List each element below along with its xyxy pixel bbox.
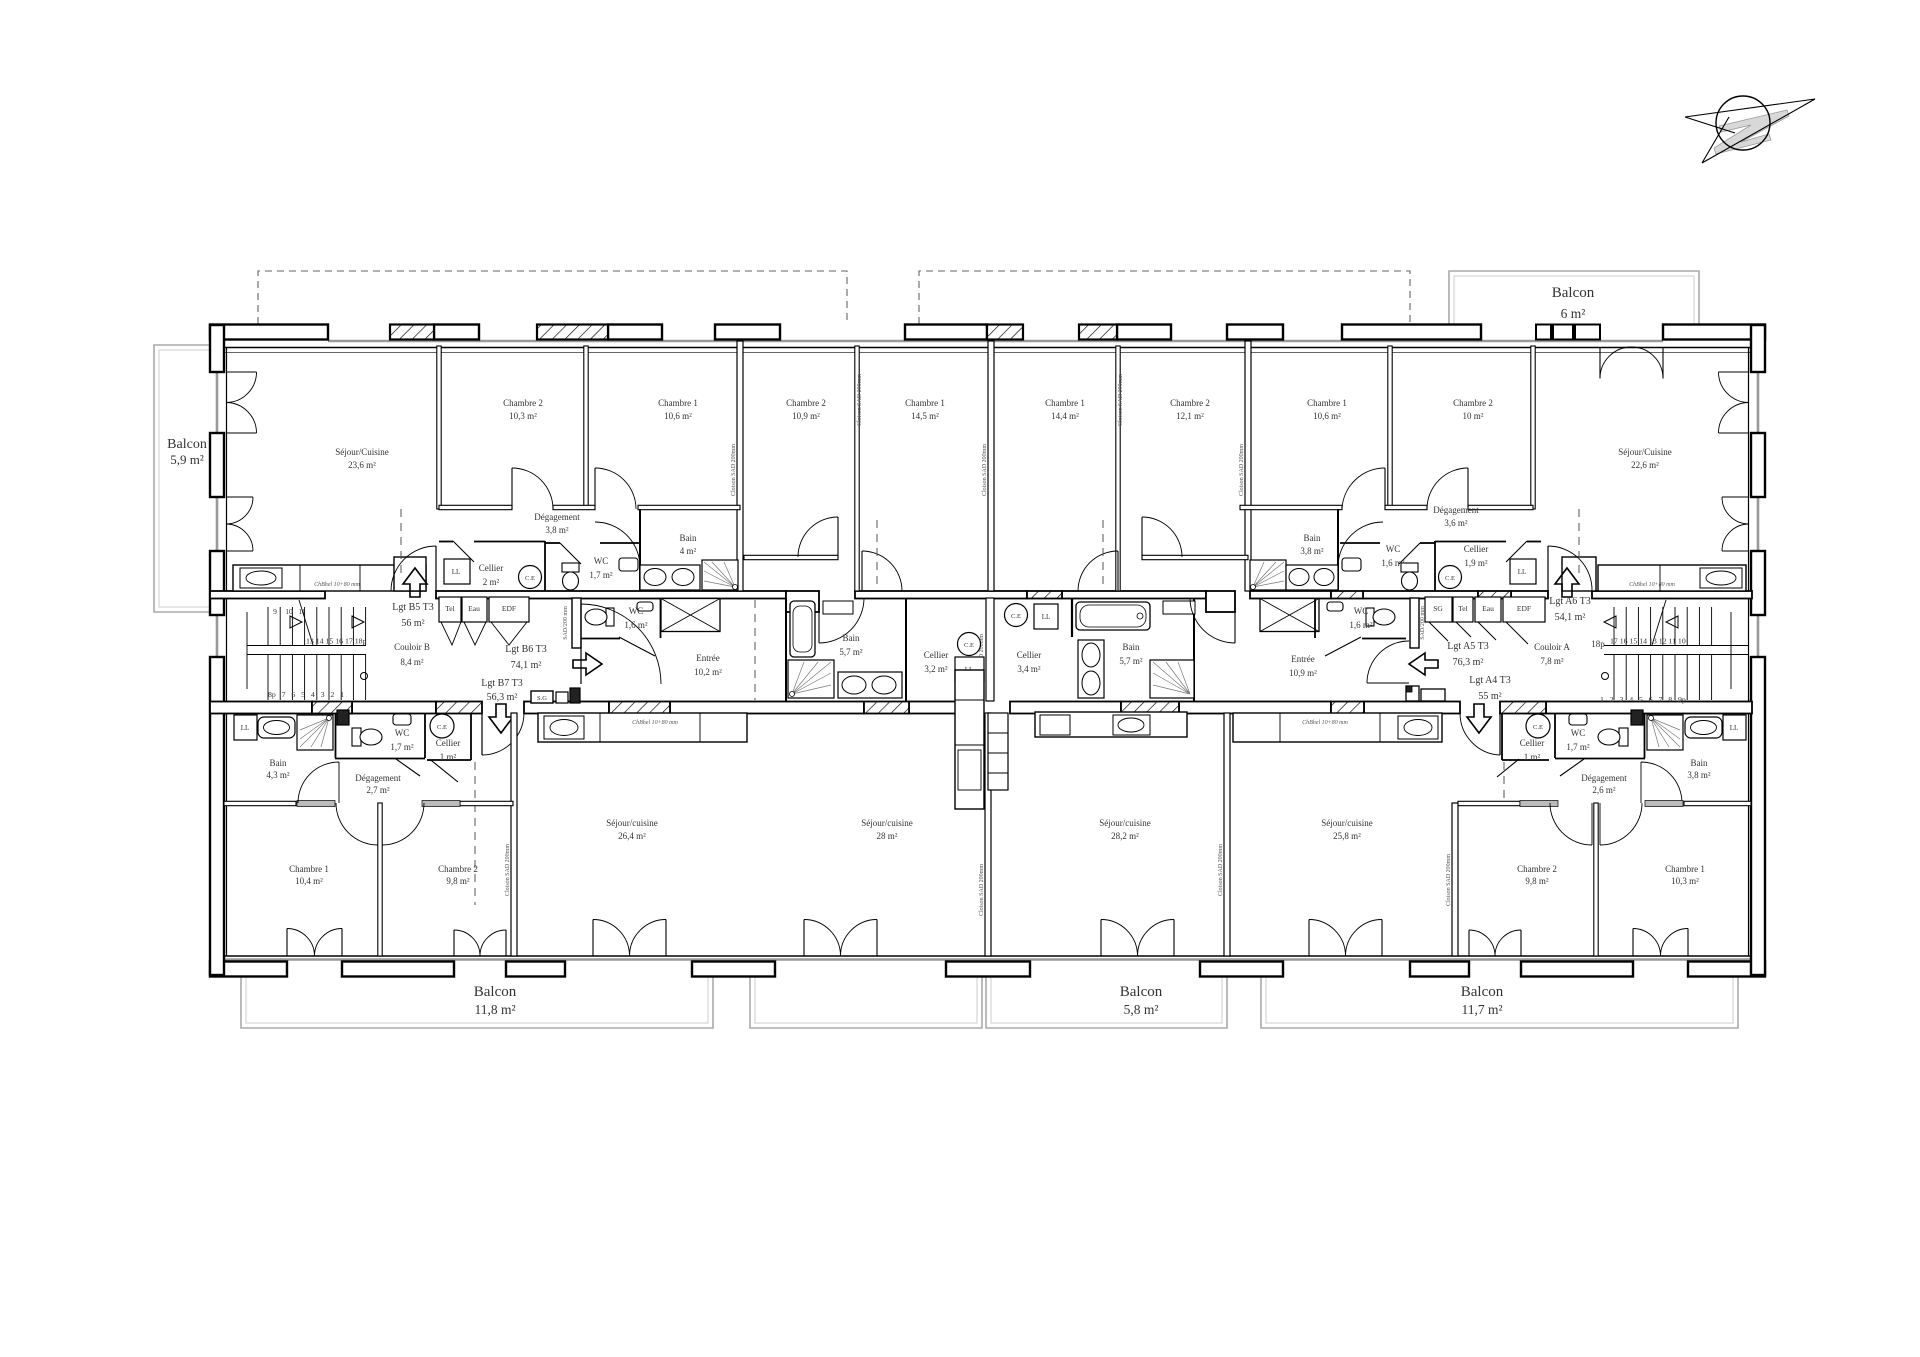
svg-text:WC: WC <box>1354 606 1369 616</box>
svg-text:Lgt B7 T3: Lgt B7 T3 <box>481 678 522 689</box>
svg-text:Chambre 2: Chambre 2 <box>786 398 826 408</box>
svg-text:Chambre 1: Chambre 1 <box>289 864 329 874</box>
svg-text:10 m²: 10 m² <box>1463 411 1484 421</box>
svg-text:Cloison SAD 200mm: Cloison SAD 200mm <box>982 444 988 496</box>
svg-text:Lgt A5 T3: Lgt A5 T3 <box>1447 641 1488 652</box>
svg-text:Entrée: Entrée <box>1291 654 1314 664</box>
svg-text:Chambre 2: Chambre 2 <box>503 398 543 408</box>
svg-text:Dégagement: Dégagement <box>355 773 401 783</box>
svg-text:ChBhel 10+80 mm: ChBhel 10+80 mm <box>1629 582 1675 588</box>
svg-text:4 m²: 4 m² <box>680 546 697 556</box>
svg-text:C.E: C.E <box>1533 724 1543 731</box>
svg-text:Bain: Bain <box>680 533 697 543</box>
svg-text:10: 10 <box>285 607 293 616</box>
svg-text:9,8 m²: 9,8 m² <box>446 876 470 886</box>
svg-text:WC: WC <box>395 728 410 738</box>
svg-text:Chambre 2: Chambre 2 <box>438 864 478 874</box>
svg-text:25,8 m²: 25,8 m² <box>1333 831 1361 841</box>
svg-text:Bain: Bain <box>270 758 287 768</box>
svg-text:Cellier: Cellier <box>479 563 504 573</box>
svg-text:11,8 m²: 11,8 m² <box>474 1002 515 1017</box>
svg-text:LL: LL <box>1518 568 1527 576</box>
svg-text:WC: WC <box>629 606 644 616</box>
svg-text:5,8 m²: 5,8 m² <box>1124 1002 1159 1017</box>
svg-text:C.E: C.E <box>964 642 974 649</box>
svg-text:Séjour/cuisine: Séjour/cuisine <box>861 818 913 828</box>
svg-text:Lgt B6 T3: Lgt B6 T3 <box>505 644 546 655</box>
svg-text:Cloison SAD 200mm: Cloison SAD 200mm <box>1239 444 1245 496</box>
svg-text:Bain: Bain <box>1304 533 1321 543</box>
svg-text:ChBhel 10+80 mm: ChBhel 10+80 mm <box>632 720 678 726</box>
svg-text:S.G: S.G <box>537 695 547 702</box>
svg-text:1,7 m²: 1,7 m² <box>589 570 613 580</box>
svg-text:SG: SG <box>1433 604 1443 613</box>
svg-text:3,6 m²: 3,6 m² <box>1444 518 1468 528</box>
svg-text:Cloison SAD 200mm: Cloison SAD 200mm <box>1118 374 1124 426</box>
svg-text:56,3 m²: 56,3 m² <box>487 692 518 703</box>
svg-text:Couloir B: Couloir B <box>394 642 430 652</box>
svg-text:WC: WC <box>1386 544 1401 554</box>
svg-text:Chambre 1: Chambre 1 <box>1307 398 1347 408</box>
svg-text:Balcon: Balcon <box>474 984 517 1000</box>
svg-text:3,8 m²: 3,8 m² <box>1300 546 1324 556</box>
svg-text:Chambre 1: Chambre 1 <box>1045 398 1085 408</box>
svg-text:Dégagement: Dégagement <box>1433 505 1479 515</box>
svg-text:1 m²: 1 m² <box>440 752 457 762</box>
svg-text:Séjour/cuisine: Séjour/cuisine <box>1099 818 1151 828</box>
svg-text:Séjour/Cuisine: Séjour/Cuisine <box>335 447 389 457</box>
svg-text:8p 7 6 5 4 3 2 1: 8p 7 6 5 4 3 2 1 <box>268 690 344 699</box>
svg-text:7,8 m²: 7,8 m² <box>1540 656 1564 666</box>
svg-text:Chambre 2: Chambre 2 <box>1170 398 1210 408</box>
svg-text:LL: LL <box>1730 724 1739 732</box>
svg-text:10,2 m²: 10,2 m² <box>694 667 722 677</box>
svg-text:ChBhel 10+80 mm: ChBhel 10+80 mm <box>1302 720 1348 726</box>
svg-text:Séjour/Cuisine: Séjour/Cuisine <box>1618 447 1672 457</box>
svg-text:WC: WC <box>1571 728 1586 738</box>
svg-text:9: 9 <box>273 607 277 616</box>
svg-text:Chambre 1: Chambre 1 <box>905 398 945 408</box>
svg-text:10,9 m²: 10,9 m² <box>792 411 820 421</box>
svg-text:1 m²: 1 m² <box>1524 752 1541 762</box>
svg-text:Cellier: Cellier <box>436 738 461 748</box>
svg-text:Cloison SAD 200mm: Cloison SAD 200mm <box>1446 854 1452 906</box>
svg-text:14,5 m²: 14,5 m² <box>911 411 939 421</box>
svg-text:Bain: Bain <box>1123 642 1140 652</box>
svg-text:5,7 m²: 5,7 m² <box>839 647 863 657</box>
svg-text:23,6 m²: 23,6 m² <box>348 460 376 470</box>
svg-text:1,6 m²: 1,6 m² <box>624 620 648 630</box>
svg-text:WC: WC <box>594 556 609 566</box>
svg-text:Dégagement: Dégagement <box>1581 773 1627 783</box>
svg-text:11,7 m²: 11,7 m² <box>1461 1002 1502 1017</box>
svg-text:Balcon: Balcon <box>1461 984 1504 1000</box>
svg-text:3,8 m²: 3,8 m² <box>1687 770 1711 780</box>
svg-text:EDF: EDF <box>502 604 516 613</box>
svg-text:11: 11 <box>298 607 305 616</box>
svg-text:LL: LL <box>452 568 461 576</box>
svg-text:76,3 m²: 76,3 m² <box>1453 657 1484 668</box>
svg-text:1,6 m²: 1,6 m² <box>1349 620 1373 630</box>
svg-text:LL: LL <box>1042 613 1051 621</box>
svg-text:26,4 m²: 26,4 m² <box>618 831 646 841</box>
svg-text:54,1 m²: 54,1 m² <box>1555 612 1586 623</box>
svg-text:Lgt A4 T3: Lgt A4 T3 <box>1469 675 1510 686</box>
svg-text:SAD/200 mm: SAD/200 mm <box>563 606 569 640</box>
svg-text:8,4 m²: 8,4 m² <box>400 657 424 667</box>
svg-text:18p: 18p <box>1591 639 1605 649</box>
svg-text:2,6 m²: 2,6 m² <box>1592 785 1616 795</box>
svg-text:10,9 m²: 10,9 m² <box>1289 668 1317 678</box>
svg-text:C.E: C.E <box>1011 613 1021 620</box>
svg-text:Cloison SAD 200mm: Cloison SAD 200mm <box>505 844 511 896</box>
svg-text:74,1 m²: 74,1 m² <box>511 660 542 671</box>
svg-text:56 m²: 56 m² <box>401 618 424 629</box>
svg-text:12,1 m²: 12,1 m² <box>1176 411 1204 421</box>
svg-text:55 m²: 55 m² <box>1478 691 1501 702</box>
svg-text:Couloir A: Couloir A <box>1534 642 1570 652</box>
svg-text:Tel: Tel <box>1458 604 1467 613</box>
svg-text:Dégagement: Dégagement <box>534 512 580 522</box>
svg-text:3,2 m²: 3,2 m² <box>924 664 948 674</box>
svg-text:Bain: Bain <box>843 633 860 643</box>
svg-text:5,7 m²: 5,7 m² <box>1119 656 1143 666</box>
svg-text:3,8 m²: 3,8 m² <box>545 525 569 535</box>
svg-text:Balcon: Balcon <box>1120 984 1163 1000</box>
svg-text:Balcon: Balcon <box>1552 285 1595 301</box>
svg-text:28,2 m²: 28,2 m² <box>1111 831 1139 841</box>
svg-text:Cloison SAD 200mm: Cloison SAD 200mm <box>731 444 737 496</box>
svg-text:Chambre 2: Chambre 2 <box>1517 864 1557 874</box>
svg-text:Entrée: Entrée <box>696 653 719 663</box>
svg-text:Tel: Tel <box>445 604 454 613</box>
svg-text:C.E: C.E <box>525 575 535 582</box>
svg-text:17 16 15 14 13 12 11 10: 17 16 15 14 13 12 11 10 <box>1610 637 1686 646</box>
svg-text:1 2 3 4 5 6 7 8: 1 2 3 4 5 6 7 8 9p <box>1600 695 1686 704</box>
svg-text:22,6 m²: 22,6 m² <box>1631 460 1659 470</box>
svg-text:14,4 m²: 14,4 m² <box>1051 411 1079 421</box>
svg-text:Cellier: Cellier <box>1464 544 1489 554</box>
svg-text:10,6 m²: 10,6 m² <box>664 411 692 421</box>
svg-text:3,4 m²: 3,4 m² <box>1017 664 1041 674</box>
svg-text:Cellier: Cellier <box>1017 650 1042 660</box>
svg-text:1,9 m²: 1,9 m² <box>1464 558 1488 568</box>
svg-text:Cloison SAD 200mm: Cloison SAD 200mm <box>979 864 985 916</box>
svg-text:Eau: Eau <box>468 604 480 613</box>
svg-text:Cloison SAD 200mm: Cloison SAD 200mm <box>857 374 863 426</box>
svg-text:5,9 m²: 5,9 m² <box>170 452 204 467</box>
svg-text:Chambre 2: Chambre 2 <box>1453 398 1493 408</box>
svg-text:Eau: Eau <box>1482 604 1494 613</box>
svg-text:Cloison SAD 200mm: Cloison SAD 200mm <box>1218 844 1224 896</box>
svg-text:Chambre 1: Chambre 1 <box>658 398 698 408</box>
svg-text:10,6 m²: 10,6 m² <box>1313 411 1341 421</box>
svg-text:Lgt B5 T3: Lgt B5 T3 <box>392 602 433 613</box>
svg-text:C.E: C.E <box>1445 575 1455 582</box>
svg-text:1,7 m²: 1,7 m² <box>1566 742 1590 752</box>
svg-text:10,3 m²: 10,3 m² <box>509 411 537 421</box>
svg-text:6 m²: 6 m² <box>1561 306 1586 321</box>
svg-text:Bain: Bain <box>1691 758 1708 768</box>
svg-text:Cellier: Cellier <box>1520 738 1545 748</box>
svg-text:1,7 m²: 1,7 m² <box>390 742 414 752</box>
svg-text:10,3 m²: 10,3 m² <box>1671 876 1699 886</box>
svg-text:Lgt A6 T3: Lgt A6 T3 <box>1549 596 1590 607</box>
svg-text:10,4 m²: 10,4 m² <box>295 876 323 886</box>
svg-text:2,7 m²: 2,7 m² <box>366 785 390 795</box>
svg-text:Chambre 1: Chambre 1 <box>1665 864 1705 874</box>
svg-text:LL: LL <box>241 724 250 732</box>
svg-text:9,8 m²: 9,8 m² <box>1525 876 1549 886</box>
svg-text:Cellier: Cellier <box>924 650 949 660</box>
svg-text:ChBhel 10+80 mm: ChBhel 10+80 mm <box>314 582 360 588</box>
svg-text:Balcon: Balcon <box>167 437 207 452</box>
svg-text:C.E: C.E <box>437 724 447 731</box>
svg-text:EDF: EDF <box>1517 604 1531 613</box>
svg-text:28 m²: 28 m² <box>877 831 898 841</box>
svg-text:Séjour/cuisine: Séjour/cuisine <box>1321 818 1373 828</box>
svg-text:Séjour/cuisine: Séjour/cuisine <box>606 818 658 828</box>
svg-text:2 m²: 2 m² <box>483 577 500 587</box>
svg-text:1,6 m²: 1,6 m² <box>1381 558 1405 568</box>
svg-text:13 14 15 16 17 18p: 13 14 15 16 17 18p <box>306 637 367 646</box>
svg-text:4,3 m²: 4,3 m² <box>266 770 290 780</box>
